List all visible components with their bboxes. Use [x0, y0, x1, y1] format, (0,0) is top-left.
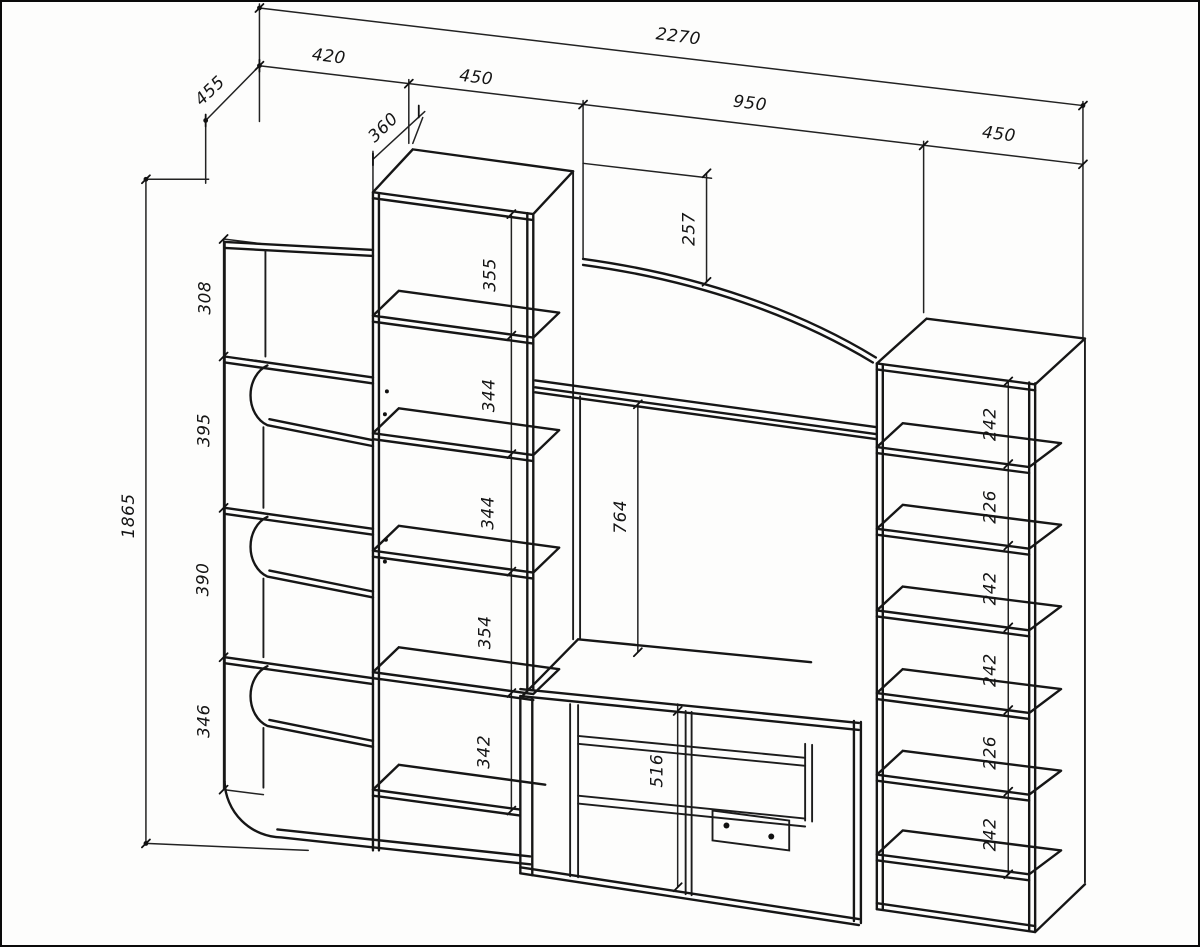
dim-right-section-1: 242 — [979, 407, 999, 441]
dim-mid-section-1: 355 — [479, 258, 499, 292]
dim-arch-height: 257 — [679, 212, 699, 246]
furniture-drawing: 2270 420 450 950 450 455 360 1865 308 39… — [2, 2, 1198, 945]
dim-right-section-6: 242 — [979, 818, 999, 852]
arch-top — [583, 259, 876, 363]
dim-top-seg-1: 420 — [311, 44, 347, 68]
dim-right-section-2: 226 — [979, 490, 999, 524]
dim-overall-width: 2270 — [655, 23, 702, 48]
dim-column-depth: 360 — [364, 108, 402, 146]
dim-left-section-4: 346 — [194, 704, 214, 738]
dim-overall-height: 1865 — [118, 493, 138, 538]
dim-mid-section-2: 344 — [478, 378, 498, 412]
drawing-sheet: 2270 420 450 950 450 455 360 1865 308 39… — [0, 0, 1200, 947]
tv-stand — [520, 696, 861, 925]
dim-top-seg-2: 450 — [458, 65, 494, 89]
dim-mid-section-5: 342 — [473, 735, 493, 769]
dim-top-seg-4: 450 — [981, 121, 1017, 145]
dim-niche-height: 764 — [610, 500, 630, 534]
dim-right-section-5: 226 — [979, 736, 999, 770]
dim-left-section-3: 390 — [193, 563, 213, 597]
dim-mid-section-4: 354 — [474, 615, 494, 649]
dimension-lines — [142, 4, 1087, 891]
dim-left-section-1: 308 — [195, 281, 215, 315]
dim-right-section-3: 242 — [979, 572, 999, 606]
dim-top-seg-3: 950 — [732, 91, 768, 115]
left-cabinet — [225, 242, 531, 864]
dim-mid-section-3: 344 — [477, 496, 497, 530]
dim-stand-height: 516 — [647, 754, 667, 788]
dim-right-section-4: 242 — [979, 653, 999, 687]
dim-left-section-2: 395 — [194, 413, 214, 447]
